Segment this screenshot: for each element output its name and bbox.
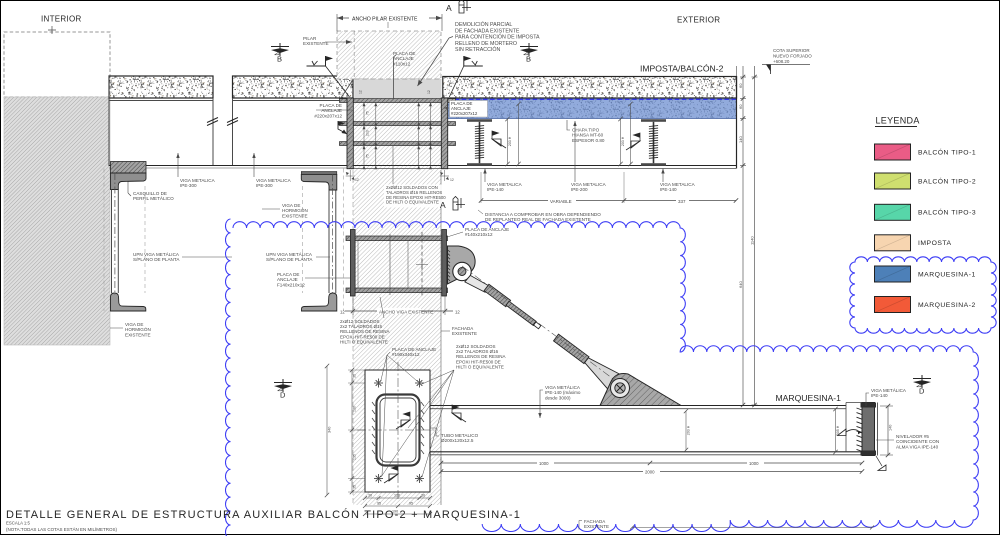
svg-text:F140x210x12: F140x210x12 [277,282,305,287]
svg-text:IMPOSTA: IMPOSTA [918,240,952,247]
svg-text:EXISTENTE: EXISTENTE [452,331,477,336]
svg-text:35: 35 [353,485,357,489]
svg-text:#220x207x12: #220x207x12 [314,113,342,118]
svg-text:B: B [277,55,282,64]
svg-text:60: 60 [738,104,743,109]
svg-text:203 H: 203 H [508,136,512,146]
svg-text:UPN VIGA METÁLICA: UPN VIGA METÁLICA [266,251,313,257]
svg-text:EXISTENTE: EXISTENTE [125,332,151,337]
svg-text:Ø200x120x12.5: Ø200x120x12.5 [441,438,474,443]
svg-text:INTERIOR: INTERIOR [41,15,82,24]
svg-text:95: 95 [377,502,381,506]
svg-text:75: 75 [366,154,370,158]
svg-text:340: 340 [328,427,332,433]
svg-text:+608.20: +608.20 [773,59,790,64]
svg-text:DEMOLICIÓN PARCIAL: DEMOLICIÓN PARCIAL [455,21,512,28]
svg-text:D: D [919,387,925,396]
svg-text:12: 12 [450,178,454,182]
svg-text:HILTI O EQUIVALENTE: HILTI O EQUIVALENTE [456,364,504,369]
svg-text:35: 35 [353,374,357,378]
svg-text:135: 135 [353,454,357,460]
svg-text:12: 12 [455,310,460,315]
svg-text:BALCÓN TIPO-2: BALCÓN TIPO-2 [918,176,976,185]
svg-text:ESPESOR 0.80: ESPESOR 0.80 [572,138,605,143]
svg-text:D: D [280,391,286,400]
svg-text:12: 12 [355,178,359,182]
svg-text:ESCALA 1:5: ESCALA 1:5 [6,521,30,526]
svg-text:DE HILTI O EQUIVALENTE: DE HILTI O EQUIVALENTE [386,200,439,205]
svg-text:12: 12 [340,310,345,315]
svg-text:S/PLANO DE PLANTA: S/PLANO DE PLANTA [266,257,313,262]
svg-text:BALCÓN TIPO-3: BALCÓN TIPO-3 [918,208,976,217]
svg-text:A: A [446,3,452,13]
svg-text:IPE-140: IPE-140 [487,187,504,192]
svg-text:HORMIGÓN: HORMIGÓN [125,326,151,332]
svg-text:1140: 1140 [749,236,754,245]
svg-text:75: 75 [366,111,370,115]
svg-text:ANCHO PILAR EXISTENTE: ANCHO PILAR EXISTENTE [352,17,418,23]
svg-text:A: A [440,200,446,210]
svg-text:DE FACHADA EXISTENTE: DE FACHADA EXISTENTE [455,28,520,34]
svg-text:EXISTENTE: EXISTENTE [584,524,609,529]
svg-text:1000: 1000 [539,461,549,466]
svg-text:NUEVO FORJADO: NUEVO FORJADO [773,54,812,59]
svg-text:30: 30 [421,494,425,498]
svg-text:IPE-300: IPE-300 [256,183,273,188]
svg-text:203 H: 203 H [621,136,625,146]
svg-text:2000: 2000 [645,469,655,474]
svg-text:337: 337 [678,199,686,204]
svg-text:B: B [526,55,531,64]
svg-text:IPE-140: IPE-140 [660,187,677,192]
svg-text:130: 130 [353,406,357,412]
svg-text:RELLENO DE MORTERO: RELLENO DE MORTERO [455,41,517,47]
svg-text:203: 203 [366,130,370,136]
svg-text:120: 120 [394,494,400,498]
svg-text:#140x210x12: #140x210x12 [465,232,493,237]
svg-text:(NOTA:TODAS LAS COTAS ESTÁN EN: (NOTA:TODAS LAS COTAS ESTÁN EN MILÍMETRO… [6,526,118,532]
svg-text:EXTERIOR: EXTERIOR [677,16,720,25]
svg-text:COTA SUPERIOR: COTA SUPERIOR [773,48,810,53]
svg-text:UPN VIGA METÁLICA: UPN VIGA METÁLICA [133,251,180,257]
svg-text:#220x207x12: #220x207x12 [451,111,478,116]
svg-text:DETALLE GENERAL DE ESTRUCTURA: DETALLE GENERAL DE ESTRUCTURA AUXILIAR B… [6,508,521,521]
svg-text:305 H: 305 H [836,425,840,435]
svg-text:60: 60 [738,83,743,88]
svg-text:SIN RETRACCIÓN: SIN RETRACCIÓN [455,46,500,53]
svg-text:PARA CONTENCIÓN DE IMPOSTA: PARA CONTENCIÓN DE IMPOSTA [455,34,540,41]
svg-text:EXISTENTE: EXISTENTE [303,41,329,46]
svg-text:95: 95 [409,502,413,506]
svg-text:VIGA METÁLICA: VIGA METÁLICA [545,384,581,390]
svg-text:IPE-140: IPE-140 [871,393,888,398]
svg-text:203 H: 203 H [687,425,691,435]
svg-text:#190x340x12: #190x340x12 [392,352,420,357]
svg-text:IPE-200: IPE-200 [571,187,588,192]
svg-text:EXISTENTE: EXISTENTE [282,213,308,218]
svg-text:140: 140 [738,136,743,143]
svg-text:S/PLANO DE PLANTA: S/PLANO DE PLANTA [133,257,180,262]
svg-text:640: 640 [738,281,743,288]
svg-text:MARQUESINA-1: MARQUESINA-1 [918,271,976,278]
svg-text:desde 3000): desde 3000) [545,395,571,400]
svg-text:MARQUESINA-1: MARQUESINA-1 [776,393,842,403]
svg-text:12: 12 [359,90,363,94]
svg-text:140: 140 [889,425,893,431]
svg-text:IMPOSTA/BALCÓN-2: IMPOSTA/BALCÓN-2 [640,64,724,74]
svg-text:HILTI O EQUIVALENTE: HILTI O EQUIVALENTE [340,339,388,344]
svg-text:PERFIL METÁLICO: PERFIL METÁLICO [133,195,174,201]
svg-text:BALCÓN TIPO-1: BALCÓN TIPO-1 [918,147,976,156]
svg-text:ANCHO VIGA EXISTENTE: ANCHO VIGA EXISTENTE [379,309,433,314]
svg-text:1000: 1000 [749,461,759,466]
svg-text:VIGA METÁLICA: VIGA METÁLICA [871,387,907,393]
svg-text:IPE-300: IPE-300 [180,183,197,188]
svg-text:HORMIGÓN: HORMIGÓN [282,207,308,213]
svg-text:12: 12 [427,90,431,94]
svg-text:30: 30 [368,494,372,498]
svg-text:#110x12: #110x12 [393,61,411,66]
svg-text:LEYENDA: LEYENDA [876,116,920,126]
svg-text:MARQUESINA-2: MARQUESINA-2 [918,302,976,309]
svg-text:VARIABLE: VARIABLE [550,199,572,204]
svg-text:ALMA VIGA IPE-140: ALMA VIGA IPE-140 [896,444,939,449]
